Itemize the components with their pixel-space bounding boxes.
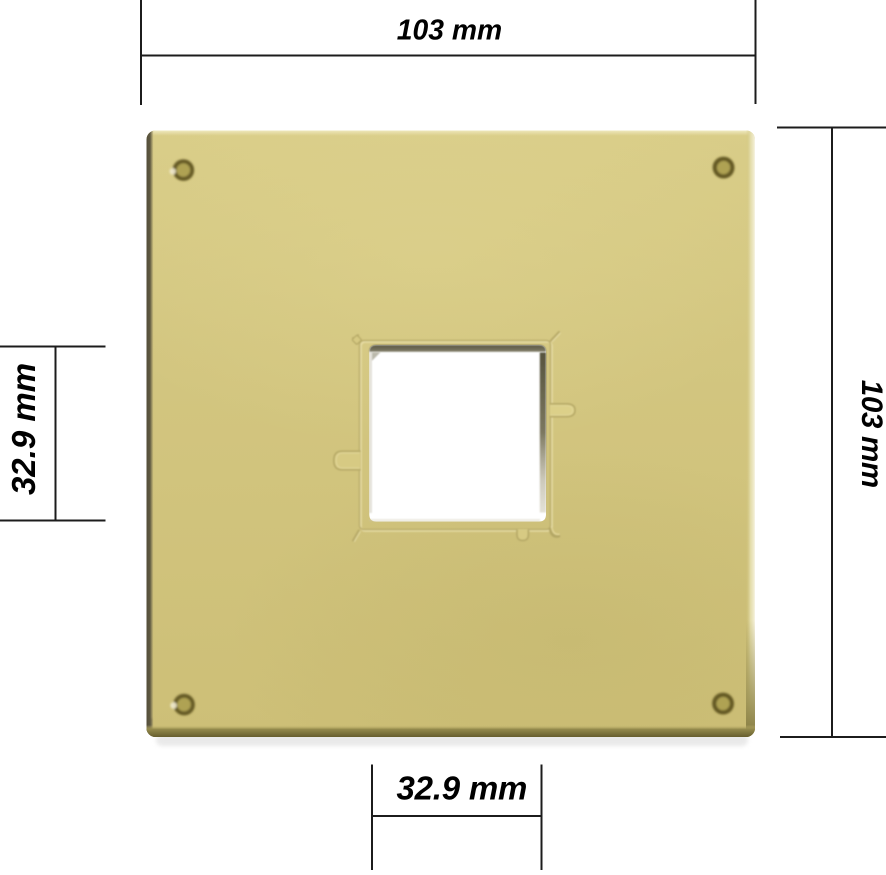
svg-text:103 mm: 103 mm — [855, 380, 886, 488]
svg-text:32.9 mm: 32.9 mm — [396, 770, 527, 807]
svg-text:32.9 mm: 32.9 mm — [5, 363, 42, 495]
svg-text:103 mm: 103 mm — [397, 14, 502, 46]
